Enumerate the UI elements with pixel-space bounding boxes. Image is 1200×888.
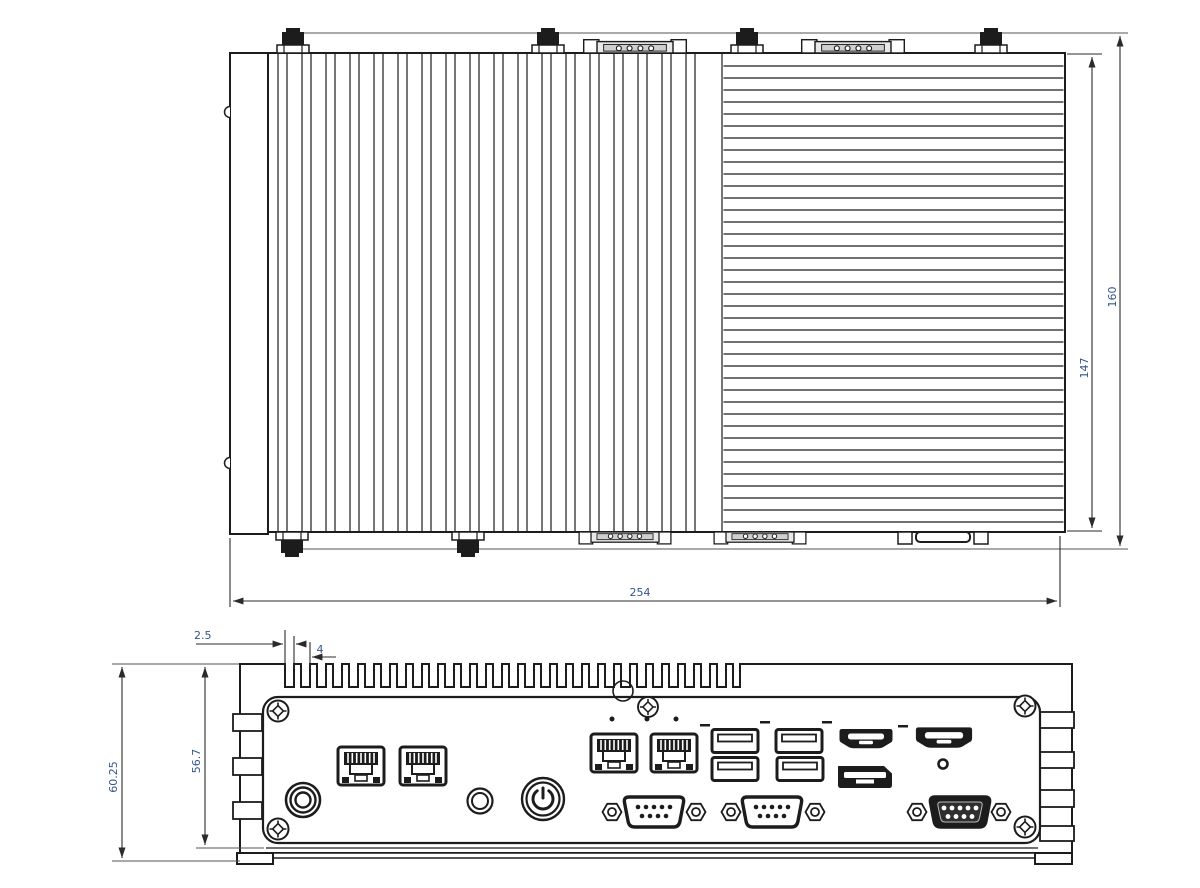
lan-port-2 bbox=[400, 747, 446, 785]
top-view: 254 147 160 bbox=[225, 28, 1129, 607]
hdmi-edge-connector bbox=[898, 532, 988, 544]
db9-nut bbox=[603, 804, 622, 820]
db9-nut bbox=[687, 804, 706, 820]
dim-label-height-inner: 147 bbox=[1078, 358, 1091, 379]
power-button bbox=[522, 778, 564, 820]
antenna-connector bbox=[731, 28, 763, 53]
chassis-foot bbox=[1035, 853, 1072, 864]
dim-label-width: 254 bbox=[630, 586, 651, 599]
flange-bump bbox=[225, 458, 230, 469]
hdmi-port-1 bbox=[840, 729, 893, 748]
flange-bump bbox=[225, 107, 230, 118]
status-led bbox=[610, 717, 615, 722]
antenna-connector bbox=[532, 28, 564, 53]
dim-label-fin-pitch: 4 bbox=[317, 643, 324, 656]
antenna-connector bbox=[277, 28, 309, 53]
dim-label-front-height-outer: 60.25 bbox=[107, 761, 120, 793]
status-led bbox=[674, 717, 679, 722]
usb-port-2 bbox=[776, 730, 822, 753]
antenna-hole bbox=[468, 789, 493, 814]
antenna-connector bbox=[452, 532, 484, 557]
antenna-connector bbox=[276, 532, 308, 557]
displayport-port bbox=[838, 766, 892, 788]
dim-label-height-outer: 160 bbox=[1106, 287, 1119, 308]
db9-edge-connector bbox=[579, 532, 671, 544]
front-view: 2.5 4 60.25 56.7 bbox=[107, 629, 1074, 864]
chassis-body-top bbox=[268, 53, 1065, 532]
dimension-width: 254 bbox=[230, 536, 1060, 607]
dc-power-jack bbox=[286, 783, 320, 817]
port-marker-dash bbox=[700, 724, 710, 727]
com-port-1 bbox=[624, 797, 683, 827]
corner-screw bbox=[1015, 696, 1036, 717]
usb-port-1 bbox=[712, 730, 758, 753]
dimension-height-inner: 147 bbox=[1067, 54, 1102, 531]
db9-edge-connector bbox=[802, 40, 905, 53]
technical-drawing-page: 254 147 160 bbox=[0, 0, 1200, 888]
lan-port-4 bbox=[651, 734, 697, 772]
base-bar bbox=[263, 853, 1035, 858]
port-marker-dash bbox=[898, 725, 908, 728]
dim-label-fin-gap: 2.5 bbox=[194, 629, 212, 642]
dim-label-front-height-inner: 56.7 bbox=[190, 749, 203, 774]
corner-screw bbox=[1015, 817, 1036, 838]
usb-port-3 bbox=[712, 758, 758, 781]
db9-nut bbox=[908, 804, 927, 820]
db9-edge-connector bbox=[714, 532, 806, 544]
reset-hole bbox=[939, 760, 948, 769]
db9-nut bbox=[806, 804, 825, 820]
chassis-foot bbox=[237, 853, 273, 864]
db9-nut bbox=[992, 804, 1011, 820]
lan-port-3 bbox=[591, 734, 637, 772]
hdmi-port-2 bbox=[916, 727, 972, 747]
com-port-2 bbox=[742, 797, 801, 827]
center-screw bbox=[638, 697, 658, 717]
mounting-flange bbox=[230, 53, 268, 534]
status-led bbox=[645, 717, 650, 722]
dimension-front-height-outer: 60.25 bbox=[107, 667, 240, 861]
corner-screw bbox=[268, 819, 289, 840]
drawing-canvas: 254 147 160 bbox=[0, 0, 1200, 888]
side-comb-left bbox=[233, 714, 262, 819]
port-marker-dash bbox=[822, 721, 832, 724]
dimension-height-outer: 160 bbox=[1106, 36, 1120, 546]
dimension-fin-gap: 2.5 bbox=[194, 629, 305, 668]
antenna-connector bbox=[975, 28, 1007, 53]
port-marker-dash bbox=[760, 721, 770, 724]
lan-port-1 bbox=[338, 747, 384, 785]
db9-edge-connector bbox=[584, 40, 687, 53]
com-port-3 bbox=[930, 797, 989, 827]
db9-nut bbox=[722, 804, 741, 820]
usb-port-4 bbox=[777, 758, 823, 781]
corner-screw bbox=[268, 701, 289, 722]
